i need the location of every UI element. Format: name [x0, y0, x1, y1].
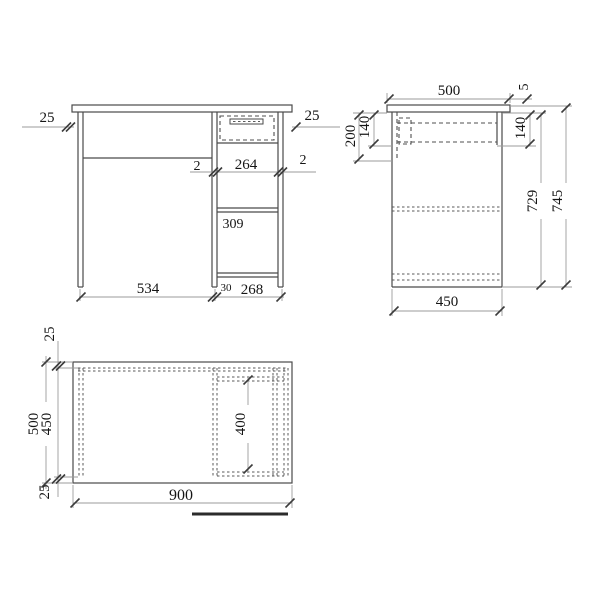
dim-side-overall-height: 745 [550, 190, 566, 213]
front-tabletop [72, 105, 292, 112]
dim-plan-inner-depth: 450 [39, 413, 55, 436]
front-drawer-hidden-outline [220, 116, 274, 140]
front-dimension-lines [22, 123, 340, 302]
front-bottom-shelf [217, 273, 278, 277]
front-cabinet-left-side [212, 112, 217, 287]
plan-hidden-right-panel [284, 368, 288, 477]
plan-view: 25 500 450 25 400 900 [26, 327, 295, 515]
plan-hidden-cabinet-left-side [213, 368, 217, 477]
dim-front-shelf-width: 309 [223, 217, 244, 232]
plan-hidden-back-apron [78, 368, 288, 371]
side-tabletop [387, 105, 510, 112]
side-hidden-bottom-shelf [392, 274, 502, 280]
side-hidden-middle-shelf [392, 207, 502, 211]
dim-front-side-thickness: 30 [221, 282, 233, 294]
dim-plan-cabinet-bay-depth: 400 [233, 413, 249, 436]
dim-plan-front-offset: 25 [37, 485, 53, 500]
plan-hidden-cabinet-right-side [273, 368, 277, 477]
front-left-leg [78, 112, 83, 287]
side-hidden-drawer [397, 112, 497, 160]
front-drawer [217, 116, 278, 143]
dim-front-drawer-width: 264 [235, 157, 258, 173]
drawing-page: 25 25 2 264 2 309 534 30 268 [0, 0, 600, 600]
plan-hidden-cabinet-front [217, 472, 284, 476]
dim-side-top-depth: 500 [438, 83, 461, 99]
dim-front-top-overhang-left: 25 [40, 110, 55, 126]
dim-plan-back-offset: 25 [42, 327, 58, 342]
side-body-outline [392, 112, 502, 287]
plan-hidden-left-leg [79, 368, 83, 478]
technical-drawing-canvas: 25 25 2 264 2 309 534 30 268 [0, 0, 600, 600]
dim-front-drawer-gap-right: 2 [300, 153, 307, 168]
dim-side-drawer-depth-left: 140 [357, 116, 373, 139]
dim-side-drawer-depth-right: 140 [513, 117, 529, 140]
front-middle-shelf [217, 208, 278, 212]
dim-front-top-overhang-right: 25 [305, 108, 320, 124]
dim-front-kneehole-width: 534 [137, 281, 160, 297]
front-cabinet-right-side [278, 112, 283, 287]
front-view: 25 25 2 264 2 309 534 30 268 [22, 105, 340, 302]
dim-side-top-overhang: 5 [517, 84, 532, 91]
side-view: 500 5 200 140 140 729 745 450 [343, 83, 572, 316]
dim-side-underside-height: 729 [525, 190, 541, 213]
plan-tabletop-outline [73, 362, 292, 483]
dim-side-cabinet-depth: 450 [436, 294, 459, 310]
dim-front-cabinet-width: 268 [241, 282, 264, 298]
dim-front-drawer-gap-left: 2 [194, 159, 201, 174]
dim-plan-overall-width: 900 [169, 487, 193, 504]
